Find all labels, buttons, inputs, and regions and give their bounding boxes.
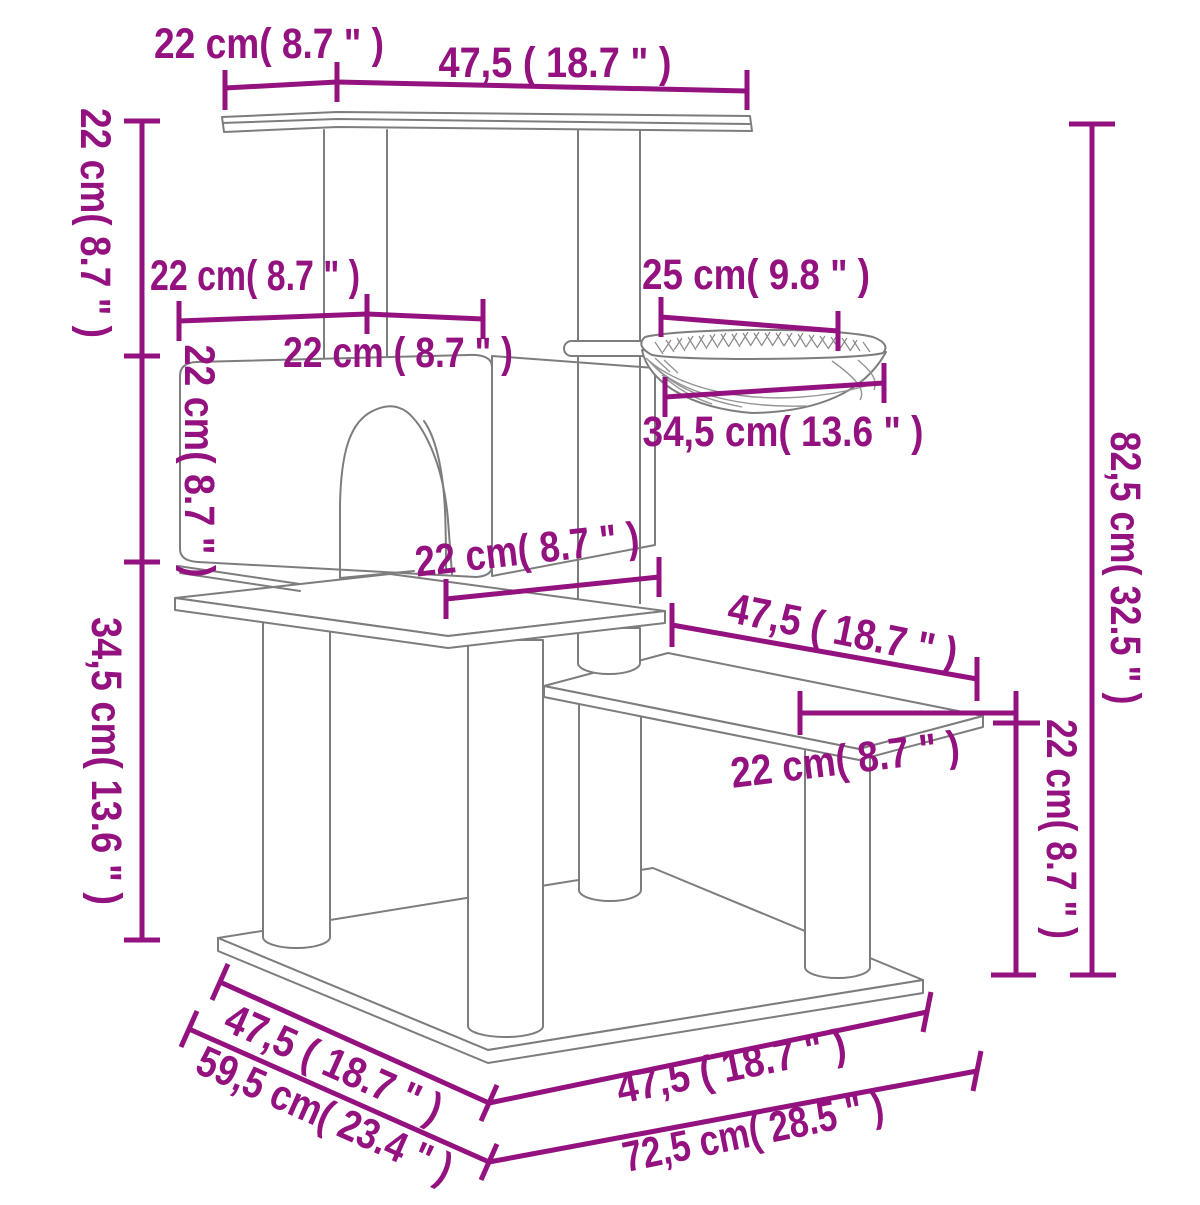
svg-text:22 cm( 8.7 " ): 22 cm( 8.7 " ) xyxy=(175,345,223,578)
svg-text:22 cm( 8.7 " ): 22 cm( 8.7 " ) xyxy=(1037,719,1085,939)
svg-text:25 cm( 9.8 " ): 25 cm( 9.8 " ) xyxy=(642,251,870,299)
svg-text:22 cm( 8.7 " ): 22 cm( 8.7 " ) xyxy=(154,20,384,68)
svg-text:22 cm( 8.7 " ): 22 cm( 8.7 " ) xyxy=(71,108,119,338)
svg-text:82,5 cm( 32.5 " ): 82,5 cm( 32.5 " ) xyxy=(1101,432,1149,705)
svg-text:47,5 ( 18.7 " ): 47,5 ( 18.7 " ) xyxy=(724,584,962,677)
svg-text:47,5 ( 18.7 " ): 47,5 ( 18.7 " ) xyxy=(439,39,672,87)
svg-text:34,5 cm( 13.6 " ): 34,5 cm( 13.6 " ) xyxy=(82,617,130,905)
svg-text:22 cm ( 8.7 " ): 22 cm ( 8.7 " ) xyxy=(283,329,513,377)
svg-text:22 cm( 8.7 " ): 22 cm( 8.7 " ) xyxy=(150,252,360,300)
svg-text:34,5 cm( 13.6 " ): 34,5 cm( 13.6 " ) xyxy=(643,408,924,456)
